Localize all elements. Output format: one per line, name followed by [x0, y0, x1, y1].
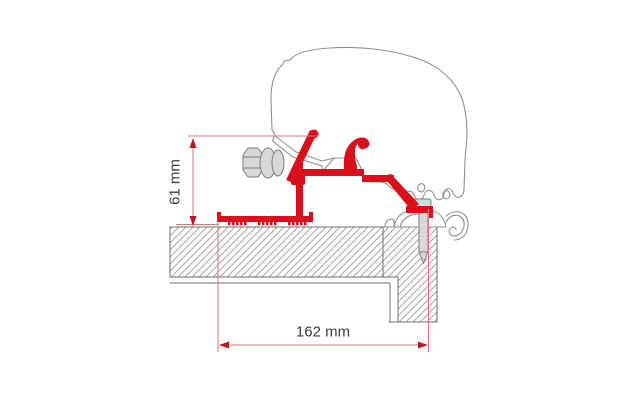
roof-slab-and-wall	[170, 227, 437, 322]
rail-left-wing	[385, 219, 394, 227]
adapter-rail-bar-upper	[300, 169, 364, 176]
bolt-washer-small	[272, 150, 284, 176]
adapter-diagonal-arm	[383, 174, 419, 210]
rail-right-hook-inner	[446, 215, 464, 236]
adapter-strap-rivet	[310, 130, 319, 139]
height-dimension-label: 61 mm	[168, 159, 183, 205]
hex-bolt-assembly	[243, 148, 284, 178]
screw-shaft	[419, 207, 428, 252]
adapter-right-foot-lip	[429, 206, 433, 218]
width-dim-arrow-left	[219, 342, 229, 349]
adapter-base-plate-teeth	[228, 222, 307, 225]
width-dimension-label: 162 mm	[296, 325, 350, 340]
adapter-hook-claw	[344, 137, 370, 174]
height-dim-arrow-up	[190, 138, 197, 148]
roof-cross-section	[170, 227, 437, 322]
width-dim-arrow-right	[418, 342, 428, 349]
caravan-torn-curl-1	[418, 184, 425, 192]
technical-drawing-canvas: 61 mm 162 mm	[0, 0, 640, 400]
